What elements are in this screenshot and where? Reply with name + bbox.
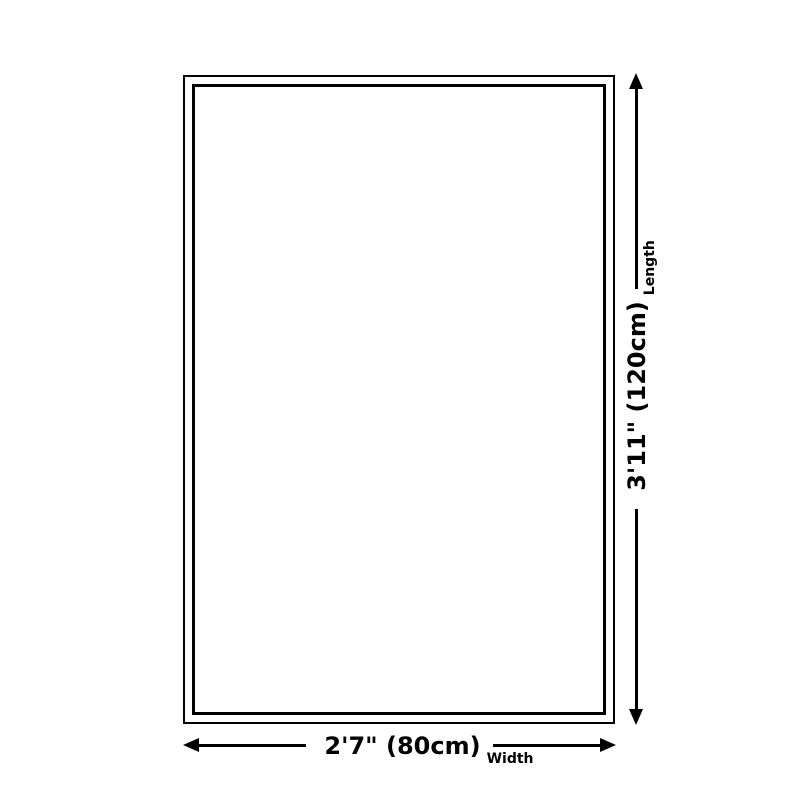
width-dimension: 2'7" (80cm) Width [183, 721, 616, 769]
length-label: Length [642, 240, 658, 295]
width-dimension-line-left [199, 744, 306, 747]
arrow-right-icon [600, 738, 616, 752]
product-outline-outer [183, 75, 615, 724]
arrow-up-icon [629, 73, 643, 89]
length-dimension-line-top: Length [635, 89, 638, 289]
arrow-down-icon [629, 709, 643, 725]
width-label: Width [487, 751, 534, 767]
width-value: 2'7" (80cm) [324, 733, 480, 759]
length-dimension: 3'11" (120cm) Length [612, 73, 660, 725]
length-value: 3'11" (120cm) [624, 301, 650, 491]
width-dimension-line-right: Width [493, 744, 600, 747]
product-outline-inner [192, 84, 606, 715]
arrow-left-icon [183, 738, 199, 752]
size-diagram: 2'7" (80cm) Width 3'11" (120cm) Length [0, 0, 800, 800]
length-dimension-line-bottom [635, 509, 638, 709]
